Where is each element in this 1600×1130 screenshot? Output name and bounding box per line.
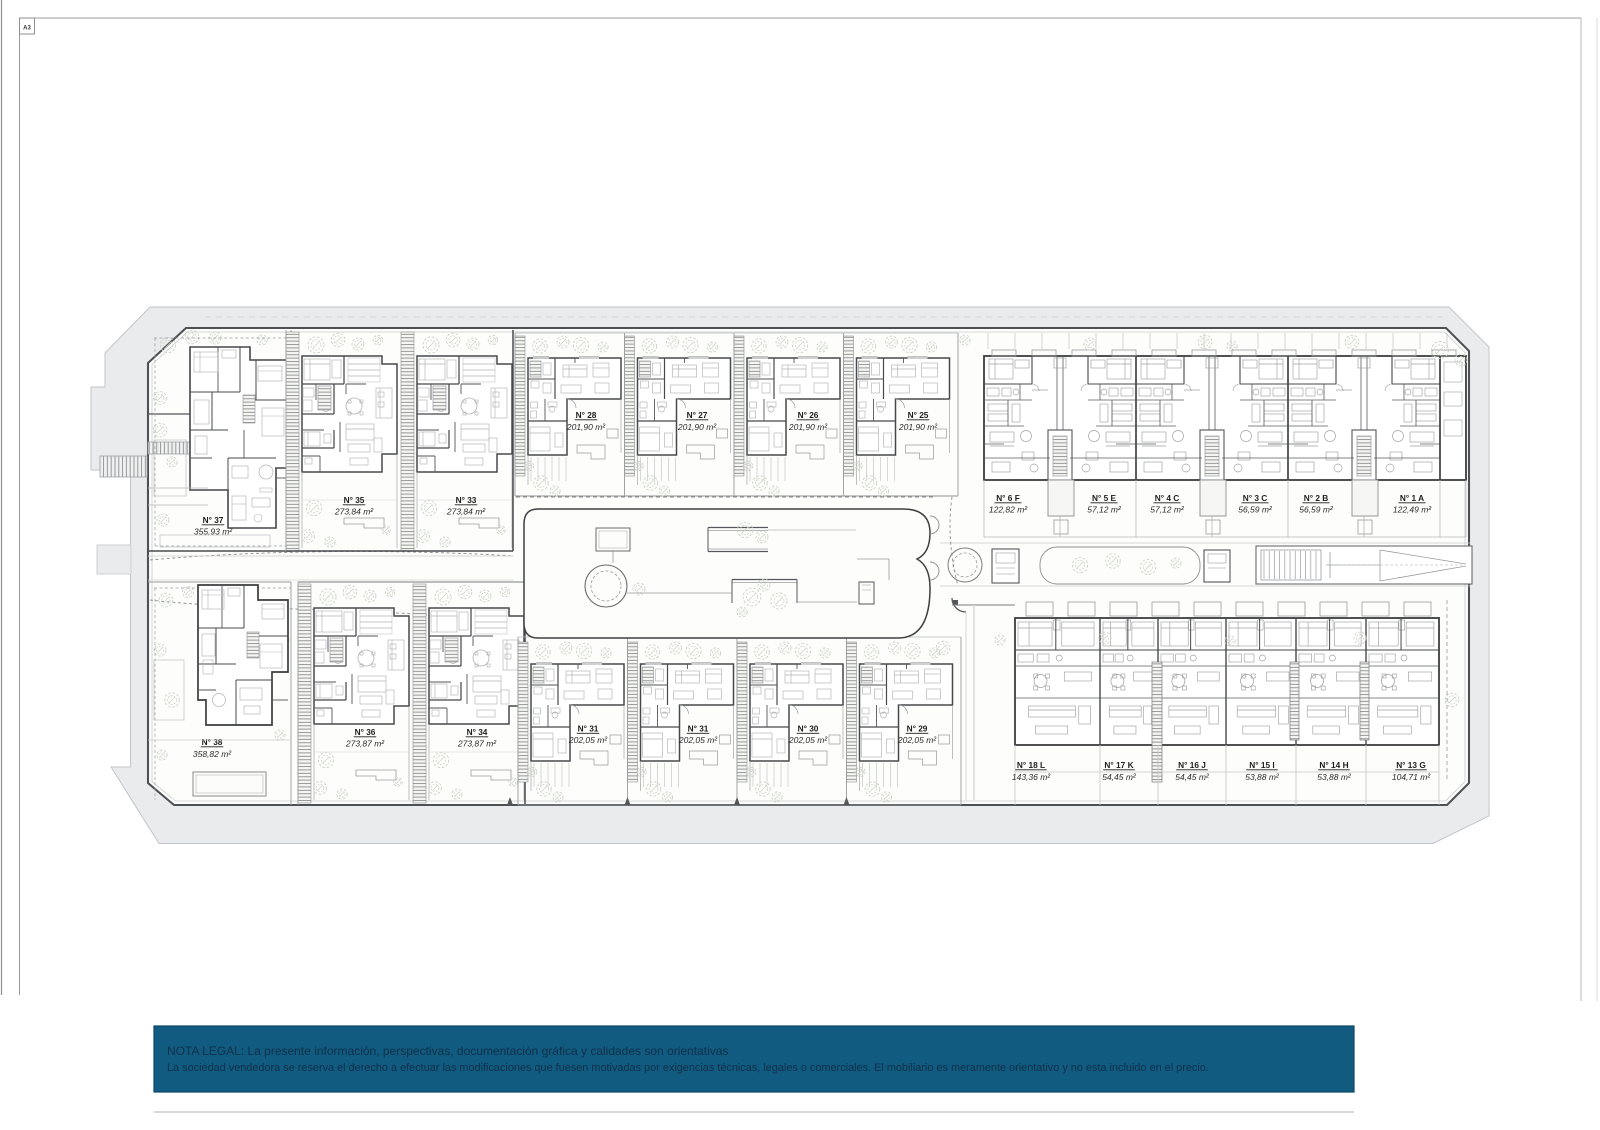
svg-text:N° 35: N° 35 bbox=[344, 495, 365, 505]
svg-text:54,45 m²: 54,45 m² bbox=[1175, 772, 1210, 782]
svg-text:N° 33: N° 33 bbox=[456, 495, 477, 505]
svg-text:122,82 m²: 122,82 m² bbox=[989, 505, 1028, 515]
svg-text:N° 13 G: N° 13 G bbox=[1396, 760, 1426, 770]
svg-text:273,84 m²: 273,84 m² bbox=[446, 507, 486, 517]
svg-text:201,90 m²: 201,90 m² bbox=[898, 422, 938, 432]
svg-text:273,84 m²: 273,84 m² bbox=[334, 507, 374, 517]
svg-text:N° 1 A: N° 1 A bbox=[1400, 493, 1424, 503]
svg-text:56,59 m²: 56,59 m² bbox=[1238, 505, 1273, 515]
svg-text:A3: A3 bbox=[23, 26, 31, 32]
svg-text:57,12 m²: 57,12 m² bbox=[1150, 505, 1185, 515]
svg-text:NOTA LEGAL: La presente inform: NOTA LEGAL: La presente información, per… bbox=[167, 1044, 728, 1058]
svg-text:143,36 m²: 143,36 m² bbox=[1012, 772, 1051, 782]
svg-text:122,49 m²: 122,49 m² bbox=[1393, 505, 1432, 515]
svg-text:N° 4 C: N° 4 C bbox=[1155, 493, 1180, 503]
svg-text:N° 25: N° 25 bbox=[908, 410, 929, 420]
svg-text:N° 16 J: N° 16 J bbox=[1178, 760, 1206, 770]
svg-text:N° 37: N° 37 bbox=[203, 515, 224, 525]
svg-text:N° 27: N° 27 bbox=[687, 410, 708, 420]
svg-text:N° 28: N° 28 bbox=[576, 410, 597, 420]
svg-text:N° 38: N° 38 bbox=[202, 737, 223, 747]
svg-text:N° 17 K: N° 17 K bbox=[1104, 760, 1133, 770]
svg-text:273,87 m²: 273,87 m² bbox=[345, 739, 385, 749]
svg-text:202,05 m²: 202,05 m² bbox=[568, 735, 608, 745]
svg-text:104,71 m²: 104,71 m² bbox=[1392, 772, 1431, 782]
svg-text:202,05 m²: 202,05 m² bbox=[788, 735, 828, 745]
svg-text:273,87 m²: 273,87 m² bbox=[457, 739, 497, 749]
svg-text:N° 14 H: N° 14 H bbox=[1319, 760, 1348, 770]
svg-text:N° 6 F: N° 6 F bbox=[996, 493, 1020, 503]
svg-text:53,88 m²: 53,88 m² bbox=[1317, 772, 1352, 782]
svg-text:N° 29: N° 29 bbox=[907, 724, 928, 734]
svg-text:358,82 m²: 358,82 m² bbox=[193, 749, 232, 759]
svg-text:53,88 m²: 53,88 m² bbox=[1245, 772, 1280, 782]
svg-text:N° 36: N° 36 bbox=[355, 727, 376, 737]
svg-text:N° 34: N° 34 bbox=[467, 727, 488, 737]
svg-text:N° 3 C: N° 3 C bbox=[1243, 493, 1268, 503]
svg-text:54,45 m²: 54,45 m² bbox=[1102, 772, 1137, 782]
svg-text:N° 18 L: N° 18 L bbox=[1017, 760, 1045, 770]
svg-text:202,05 m²: 202,05 m² bbox=[897, 735, 937, 745]
svg-text:57,12 m²: 57,12 m² bbox=[1087, 505, 1122, 515]
svg-text:N° 5 E: N° 5 E bbox=[1092, 493, 1117, 503]
svg-text:N° 15 I: N° 15 I bbox=[1249, 760, 1274, 770]
svg-text:N° 30: N° 30 bbox=[798, 724, 819, 734]
svg-text:La sociedad vendedora se reser: La sociedad vendedora se reserva el dere… bbox=[167, 1062, 1209, 1074]
svg-text:N° 31: N° 31 bbox=[688, 724, 709, 734]
svg-text:201,90 m²: 201,90 m² bbox=[788, 422, 828, 432]
svg-text:56,59 m²: 56,59 m² bbox=[1299, 505, 1334, 515]
svg-text:N° 2 B: N° 2 B bbox=[1304, 493, 1329, 503]
svg-text:N° 31: N° 31 bbox=[578, 724, 599, 734]
svg-text:201,90 m²: 201,90 m² bbox=[566, 422, 606, 432]
svg-text:202,05 m²: 202,05 m² bbox=[678, 735, 718, 745]
svg-text:N° 26: N° 26 bbox=[798, 410, 819, 420]
svg-text:201,90 m²: 201,90 m² bbox=[677, 422, 717, 432]
